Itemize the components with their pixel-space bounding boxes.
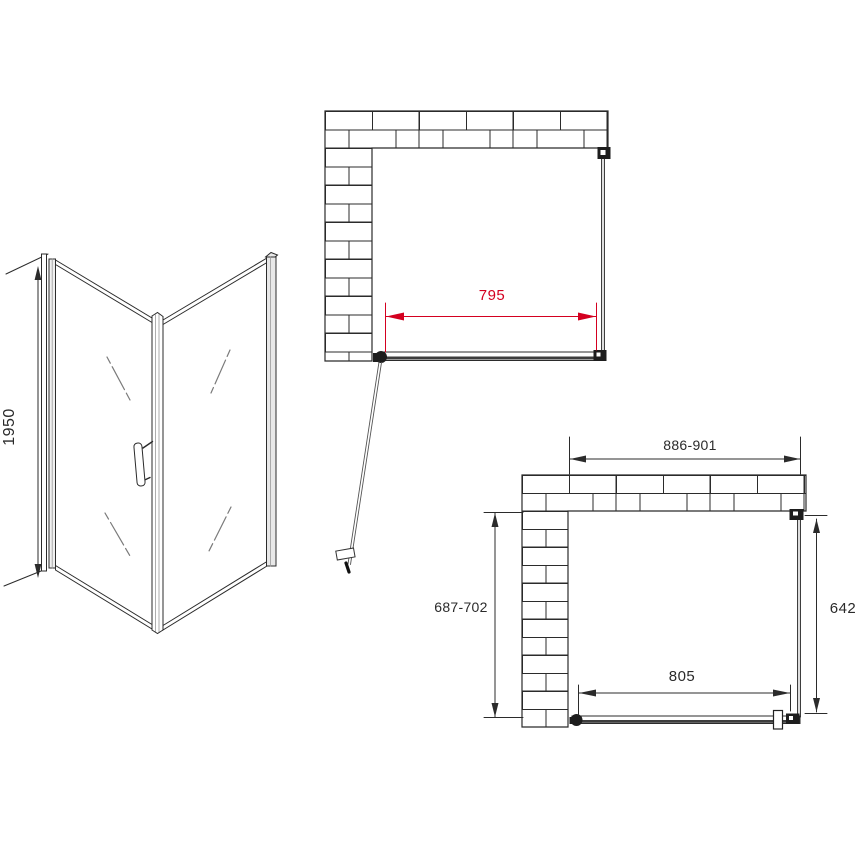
bottom-glass-bar — [570, 711, 801, 730]
height-dimension-label: 1950 — [2, 403, 18, 451]
door-open-swing — [336, 362, 382, 572]
wall-bracket — [598, 147, 611, 159]
arrow-right-icon — [773, 690, 790, 697]
arrow-left-icon — [386, 313, 404, 321]
side-depth-dimension-label: 687-702 — [431, 599, 491, 615]
wall-bracket — [790, 509, 804, 520]
arrow-right-icon — [784, 456, 800, 463]
door-closed-bar — [373, 350, 607, 363]
arrow-up-icon — [492, 513, 499, 527]
plan-view-bottom — [430, 425, 858, 745]
perspective-view — [0, 240, 300, 660]
side-glass-panel — [163, 258, 267, 630]
shower-enclosure-technical-drawing: 1950 — [0, 0, 858, 858]
side-panel-wall-post — [266, 253, 278, 567]
hinge-pivot — [571, 714, 583, 726]
fixed-side-panel — [798, 519, 801, 717]
fixed-side-panel — [602, 158, 605, 350]
arrow-up-icon — [35, 266, 42, 280]
handle-plan — [774, 711, 783, 730]
brick-wall — [522, 475, 806, 727]
hinge-pivot — [375, 351, 387, 363]
arrow-left-icon — [579, 690, 596, 697]
open-door-handle — [336, 548, 355, 560]
dimension-642 — [805, 516, 827, 714]
bottom-glass-width-dimension-label: 805 — [660, 669, 704, 685]
side-panel-width-dimension-label: 642 — [826, 601, 858, 617]
corner-post — [152, 313, 163, 634]
glass-width-dimension-label: 795 — [466, 288, 518, 304]
overall-width-dimension-label: 886-901 — [653, 437, 727, 453]
dimension-687-702 — [484, 513, 523, 718]
brick-wall — [325, 111, 608, 361]
arrow-down-icon — [813, 698, 820, 712]
arrow-right-icon — [578, 313, 596, 321]
door-frame-left-post — [42, 254, 56, 571]
arrow-left-icon — [570, 456, 586, 463]
dimension-795 — [386, 303, 597, 352]
arrow-up-icon — [813, 519, 820, 533]
arrow-down-icon — [492, 703, 499, 717]
dimension-805 — [579, 685, 791, 715]
